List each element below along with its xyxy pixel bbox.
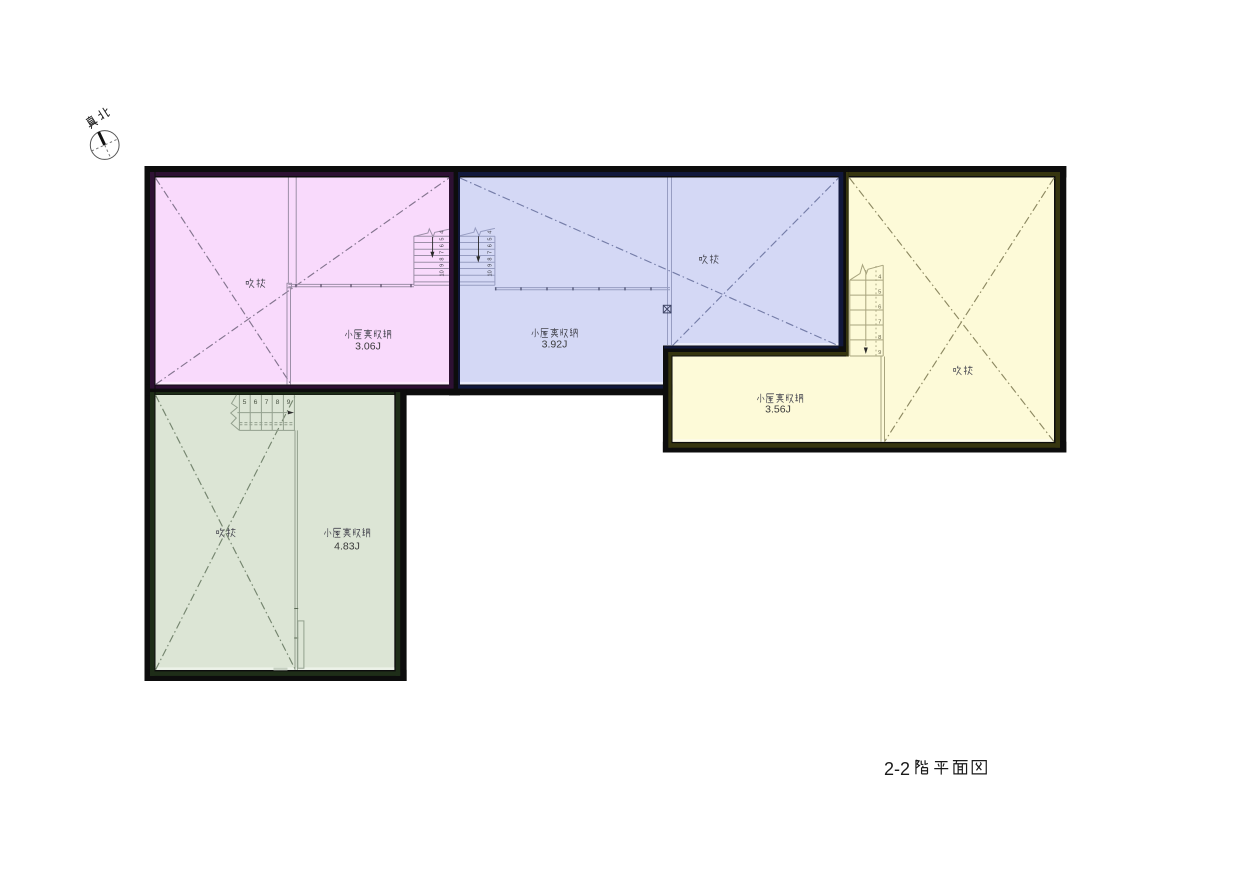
svg-text:9: 9 [287,399,291,406]
svg-text:3.06J: 3.06J [355,341,381,353]
svg-text:3.56J: 3.56J [765,404,791,416]
svg-text:5: 5 [440,237,446,240]
svg-text:9: 9 [440,264,446,267]
svg-text:6: 6 [440,244,446,247]
svg-text:6: 6 [487,244,493,247]
svg-text:4.83J: 4.83J [334,541,360,553]
svg-text:8: 8 [440,258,446,261]
svg-text:4: 4 [487,231,493,234]
svg-text:7: 7 [440,251,446,254]
svg-text:4: 4 [440,231,446,234]
svg-text:9: 9 [487,264,493,267]
svg-text:5: 5 [243,399,247,406]
svg-text:10: 10 [440,270,446,276]
svg-text:7: 7 [265,399,269,406]
svg-text:2-2: 2-2 [884,759,910,779]
svg-text:6: 6 [254,399,258,406]
svg-text:5: 5 [487,237,493,240]
svg-text:6: 6 [878,304,881,310]
svg-text:8: 8 [487,258,493,261]
svg-text:9: 9 [878,350,881,356]
svg-text:7: 7 [878,319,881,325]
svg-text:5: 5 [878,289,881,295]
svg-text:8: 8 [276,399,280,406]
svg-text:10: 10 [487,270,493,276]
svg-text:7: 7 [487,251,493,254]
svg-text:3.92J: 3.92J [542,339,568,351]
svg-text:8: 8 [878,335,881,341]
